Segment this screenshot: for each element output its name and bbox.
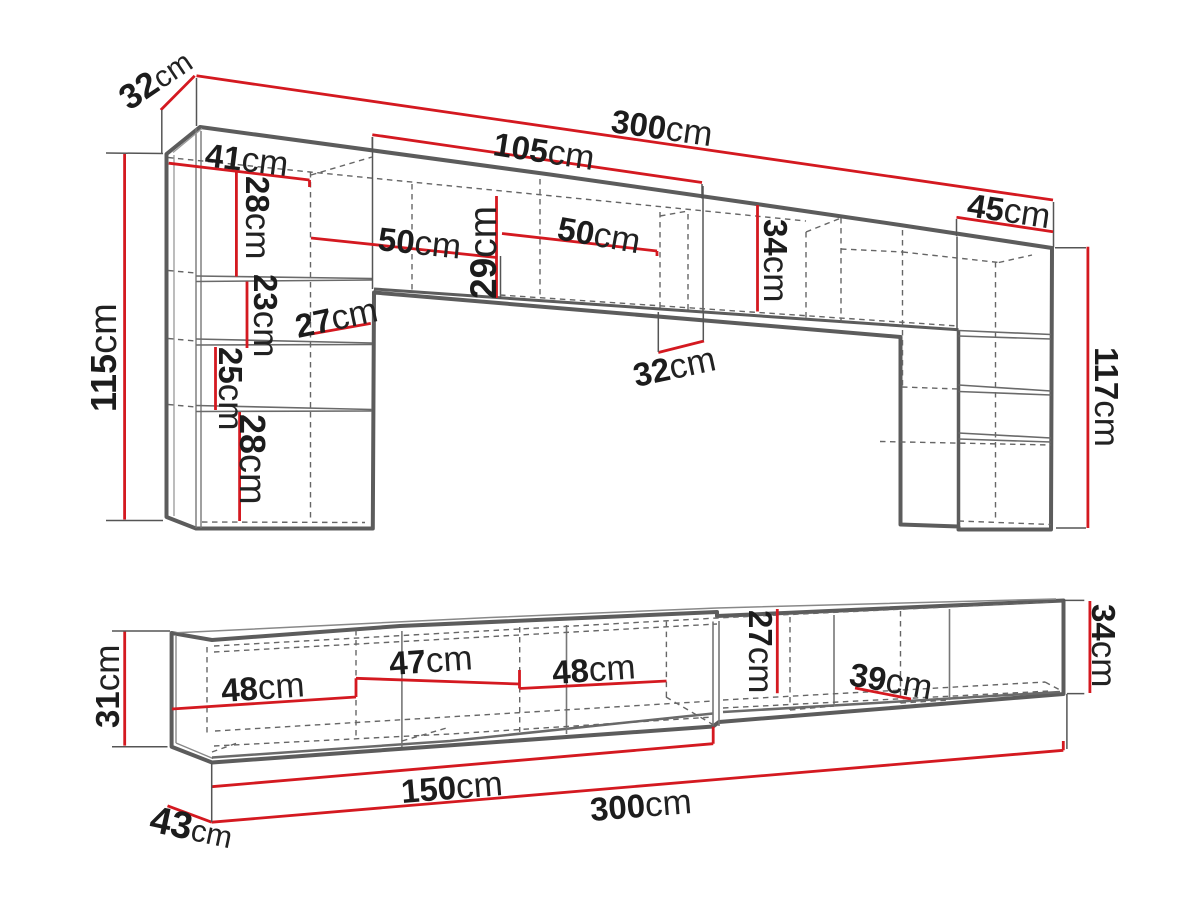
svg-text:28cm: 28cm (238, 176, 277, 259)
svg-text:47cm: 47cm (388, 638, 474, 683)
svg-text:43cm: 43cm (146, 799, 237, 857)
svg-text:50cm: 50cm (555, 208, 644, 261)
svg-text:150cm: 150cm (400, 764, 504, 811)
svg-text:28cm: 28cm (231, 414, 273, 505)
svg-text:27cm: 27cm (292, 290, 382, 345)
svg-text:48cm: 48cm (220, 665, 306, 710)
svg-text:32cm: 32cm (630, 339, 720, 394)
svg-text:23cm: 23cm (246, 274, 285, 357)
svg-text:27cm: 27cm (741, 610, 780, 693)
svg-text:117cm: 117cm (1087, 347, 1126, 447)
svg-text:32cm: 32cm (112, 41, 199, 117)
svg-text:50cm: 50cm (376, 219, 463, 267)
svg-text:34cm: 34cm (756, 219, 795, 302)
svg-text:48cm: 48cm (551, 647, 637, 692)
svg-text:39cm: 39cm (847, 654, 936, 707)
svg-text:115cm: 115cm (83, 303, 125, 412)
svg-text:45cm: 45cm (965, 185, 1053, 236)
svg-text:34cm: 34cm (1084, 604, 1123, 687)
svg-text:29cm: 29cm (462, 206, 505, 299)
svg-text:300cm: 300cm (609, 101, 715, 154)
svg-text:31cm: 31cm (88, 645, 127, 728)
svg-text:300cm: 300cm (589, 782, 693, 829)
